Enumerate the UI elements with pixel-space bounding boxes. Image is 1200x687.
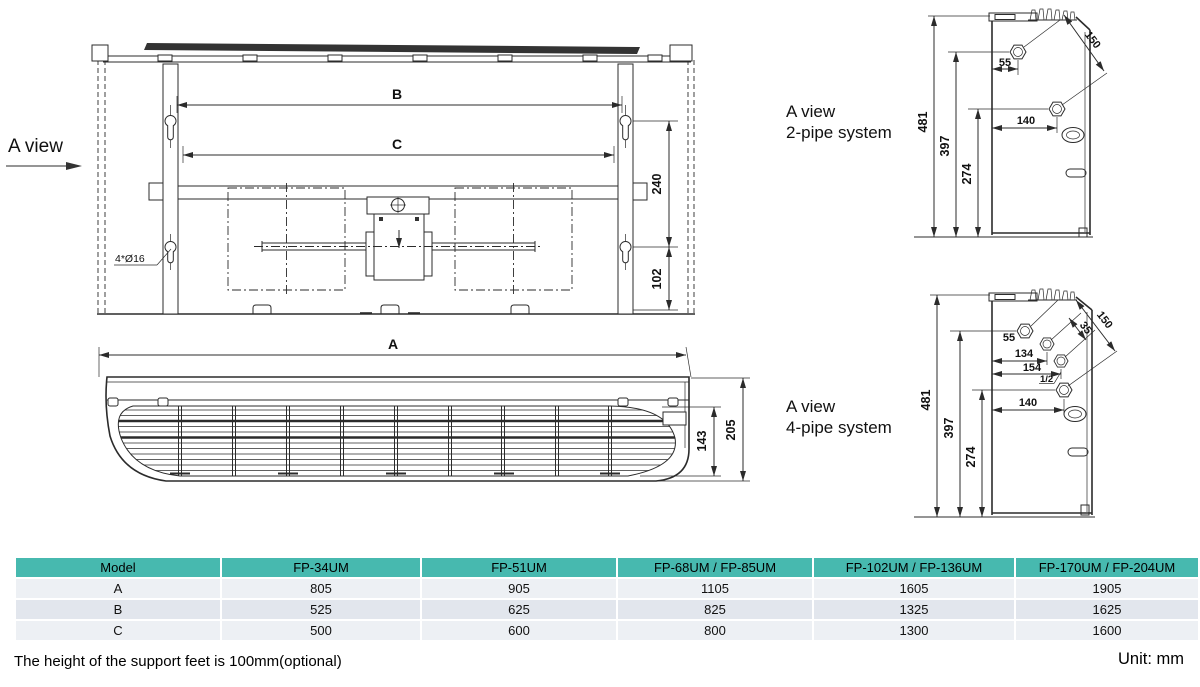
name-plate (663, 412, 686, 425)
table-row-c: C 500 600 800 1300 1600 (16, 621, 1198, 640)
row-b-val-4: 1625 (1016, 600, 1198, 619)
pipe4-view-drawing: A view 4-pipe system (786, 289, 1117, 517)
dim-a: A (99, 336, 691, 377)
pipe2-dim-55: 55 (999, 57, 1011, 69)
rear-view-drawing: B C 240 102 4*Ø16 A view (6, 43, 695, 314)
dim-143-label: 143 (695, 431, 709, 452)
row-c-val-3: 1300 (814, 621, 1014, 640)
table-header-fp34: FP-34UM (222, 558, 420, 577)
dim-b: B (177, 86, 622, 113)
row-a-val-0: 805 (222, 579, 420, 598)
pipe2-dim-274: 274 (960, 164, 974, 185)
table-header-row: Model FP-34UM FP-51UM FP-68UM / FP-85UM … (16, 558, 1198, 577)
pipe2-view-drawing: A view 2-pipe system (786, 9, 1107, 237)
grille-clips (108, 398, 678, 406)
left-mounting-rail (163, 64, 178, 314)
pipe4-dim-55: 55 (1003, 332, 1015, 344)
pipe4-dim-397: 397 (942, 418, 956, 439)
grille-dividers (179, 406, 612, 476)
table-header-fp51: FP-51UM (422, 558, 616, 577)
a-view-callout: A view (6, 136, 82, 170)
pipe4-dim-140: 140 (1019, 397, 1037, 409)
a-view-label: A view (8, 136, 63, 157)
top-right-bracket (670, 45, 692, 61)
row-c-label: C (16, 621, 220, 640)
row-c-val-2: 800 (618, 621, 812, 640)
dim-b-label: B (392, 86, 402, 102)
pipe2-title-line2: 2-pipe system (786, 123, 892, 142)
dimensions-table-wrap: Model FP-34UM FP-51UM FP-68UM / FP-85UM … (14, 556, 1200, 642)
bottom-tabs (253, 305, 529, 314)
pipe2-dim-397: 397 (938, 136, 952, 157)
pipe2-body (914, 9, 1093, 237)
air-outlet-grille (118, 406, 675, 476)
front-view-drawing: A (99, 336, 750, 481)
table-header-model: Model (16, 558, 220, 577)
support-feet-note: The height of the support feet is 100mm(… (14, 653, 342, 670)
dim-240-label: 240 (650, 174, 664, 195)
row-b-val-2: 825 (618, 600, 812, 619)
row-b-val-0: 525 (222, 600, 420, 619)
row-b-val-3: 1325 (814, 600, 1014, 619)
pipe4-dim-481: 481 (919, 390, 933, 411)
row-a-val-1: 905 (422, 579, 616, 598)
holes-label: 4*Ø16 (115, 253, 145, 265)
pipe4-body (914, 289, 1095, 517)
table-header-fp170-204: FP-170UM / FP-204UM (1016, 558, 1198, 577)
pipe2-title-line1: A view (786, 102, 836, 121)
technical-drawing: B C 240 102 4*Ø16 A view (0, 0, 1200, 545)
pipe4-dim-134: 134 (1015, 348, 1034, 360)
right-mounting-rail (618, 64, 633, 314)
table-row-b: B 525 625 825 1325 1625 (16, 600, 1198, 619)
dim-205-label: 205 (724, 420, 738, 441)
rail-end-plate-left (149, 183, 163, 200)
top-left-bracket (92, 45, 108, 61)
row-b-label: B (16, 600, 220, 619)
table-header-fp102-136: FP-102UM / FP-136UM (814, 558, 1014, 577)
pipe4-title-line2: 4-pipe system (786, 418, 892, 437)
holes-callout: 4*Ø16 (114, 249, 171, 265)
dim-c: C (183, 136, 614, 163)
unit-note: Unit: mm (1118, 650, 1184, 669)
row-a-label: A (16, 579, 220, 598)
row-c-val-4: 1600 (1016, 621, 1198, 640)
pipe2-dims: 481 397 274 55 140 150 (916, 15, 1107, 237)
grille-slats (108, 406, 682, 476)
motor-assembly (254, 197, 543, 280)
row-c-val-1: 600 (422, 621, 616, 640)
dim-102-label: 102 (650, 269, 664, 290)
spec-sheet-page: B C 240 102 4*Ø16 A view (0, 0, 1200, 687)
dim-a-label: A (388, 336, 398, 352)
pipe2-dim-481: 481 (916, 112, 930, 133)
pipe4-dim-154: 154 (1023, 362, 1042, 374)
row-a-val-2: 1105 (618, 579, 812, 598)
dim-c-label: C (392, 136, 402, 152)
row-a-val-3: 1605 (814, 579, 1014, 598)
pipe4-dim-274: 274 (964, 447, 978, 468)
dimensions-table: Model FP-34UM FP-51UM FP-68UM / FP-85UM … (14, 556, 1200, 642)
row-a-val-4: 1905 (1016, 579, 1198, 598)
dim-240-102: 240 102 (633, 121, 678, 310)
rail-end-plate-right (633, 183, 647, 200)
row-c-val-0: 500 (222, 621, 420, 640)
a-view-arrow-icon (66, 162, 82, 170)
pipe2-dim-140: 140 (1017, 115, 1035, 127)
row-b-val-1: 625 (422, 600, 616, 619)
table-row-a: A 805 905 1105 1605 1905 (16, 579, 1198, 598)
table-header-fp68-85: FP-68UM / FP-85UM (618, 558, 812, 577)
pipe4-title-line1: A view (786, 397, 836, 416)
